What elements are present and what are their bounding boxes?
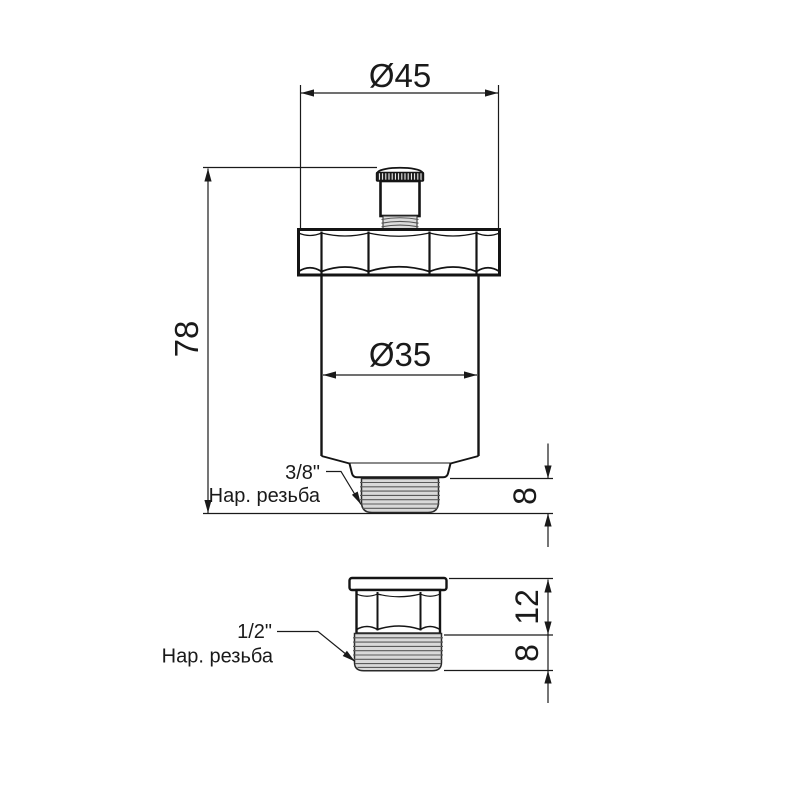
thread-3-8-ridges bbox=[360, 483, 440, 509]
dim-12-arrow-top bbox=[544, 580, 551, 593]
technical-drawing-canvas: Ø45 78 Ø35 8 3/8" Нар. резьба bbox=[0, 0, 800, 800]
body-bottom-bevel bbox=[322, 456, 479, 464]
vent-cap bbox=[377, 168, 424, 229]
dim-8-arrow-top bbox=[544, 466, 551, 479]
dim-12-label: 12 bbox=[509, 589, 545, 625]
dim-adapter-8-arrow-bottom bbox=[544, 671, 551, 684]
drawing-page: Ø45 78 Ø35 8 3/8" Нар. резьба bbox=[0, 0, 800, 800]
vent-cap-dome bbox=[378, 168, 423, 173]
dim-35-label: Ø35 bbox=[369, 336, 431, 373]
dim-35-arrow-right bbox=[464, 371, 477, 378]
dim-78-label: 78 bbox=[168, 321, 205, 358]
thread-3-8-size-label: 3/8" bbox=[285, 462, 320, 484]
dim-height-78: 78 bbox=[168, 168, 553, 514]
dim-8-arrow-bottom bbox=[544, 514, 551, 527]
thread-1-2-size-label: 1/2" bbox=[237, 621, 272, 643]
adapter-flange-outline bbox=[350, 578, 447, 590]
adapter-flange bbox=[350, 578, 447, 590]
dim-78-arrow-top bbox=[204, 169, 211, 182]
thread-3-8-type-label: Нар. резьба bbox=[209, 485, 321, 507]
adapter-view: 12 8 1/2" Нар. резьба bbox=[162, 578, 553, 703]
dim-12-arrow-bottom bbox=[544, 622, 551, 635]
dim-45-arrow-right bbox=[485, 89, 498, 96]
thread-1-2-outline bbox=[355, 634, 442, 671]
dim-adapter-thread-8: 8 bbox=[444, 635, 553, 704]
main-view: Ø45 78 Ø35 8 3/8" Нар. резьба bbox=[168, 57, 553, 547]
leader-1-2-line bbox=[277, 632, 355, 662]
dim-adapter-8-label: 8 bbox=[509, 644, 545, 662]
leader-thread-3-8: 3/8" Нар. резьба bbox=[209, 462, 361, 507]
thread-3-8 bbox=[360, 479, 440, 513]
vent-cap-thread bbox=[382, 216, 419, 229]
outlet-collar bbox=[350, 464, 451, 478]
valve-body bbox=[322, 275, 479, 477]
hex-flange bbox=[299, 230, 500, 276]
dim-hex-height-12: 12 bbox=[444, 579, 553, 636]
dim-35-arrow-left bbox=[323, 371, 336, 378]
leader-3-8-arrow bbox=[352, 492, 361, 505]
leader-thread-1-2: 1/2" Нар. резьба bbox=[162, 621, 355, 668]
dim-45-arrow-left bbox=[301, 89, 314, 96]
dim-8-label: 8 bbox=[507, 487, 543, 505]
thread-1-2-type-label: Нар. резьба bbox=[162, 646, 274, 668]
dim-diameter-35: Ø35 bbox=[323, 336, 477, 379]
dim-45-label: Ø45 bbox=[369, 57, 431, 94]
adapter-hex bbox=[357, 590, 441, 634]
thread-1-2 bbox=[353, 634, 443, 671]
vent-cap-body bbox=[381, 181, 420, 216]
